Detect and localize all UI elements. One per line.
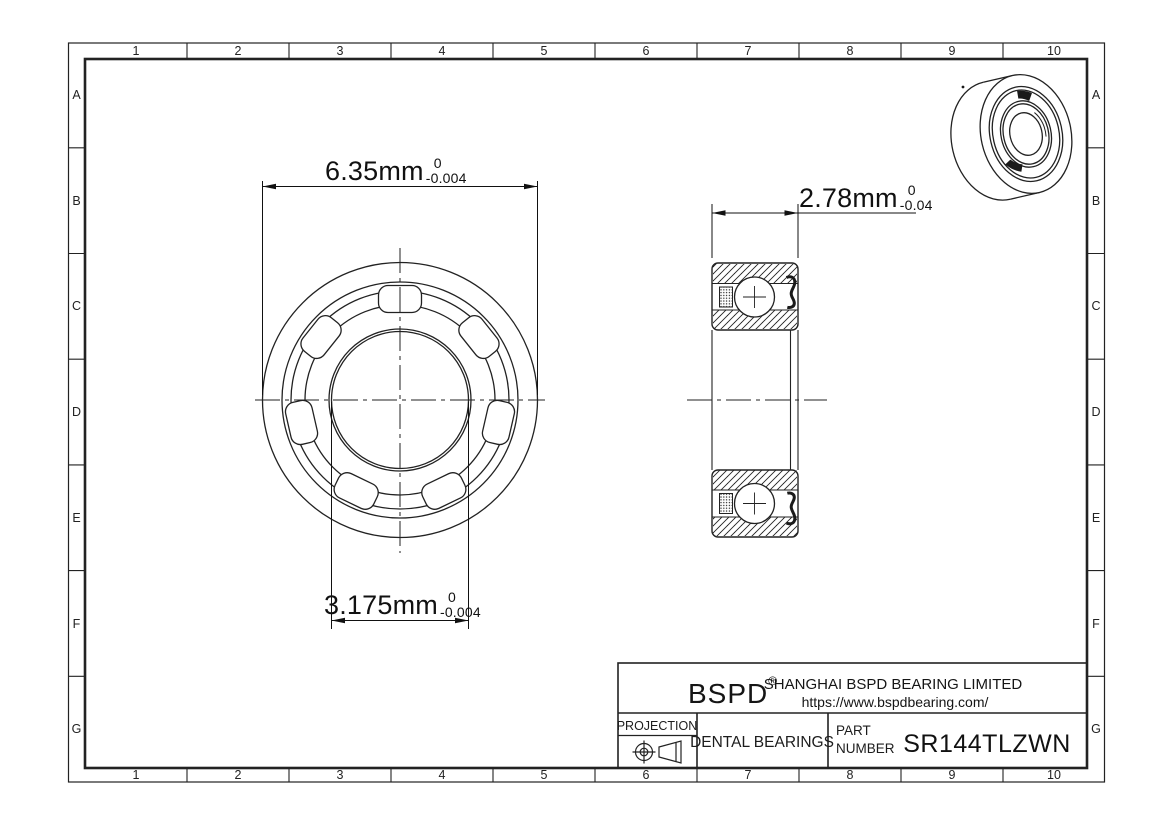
od-dimension-value: 6.35mm [325,159,424,185]
bore-dimension-tolerance: 0 -0.004 [440,590,481,619]
grid-col-label: 9 [949,768,956,782]
grid-row-label: A [72,88,80,102]
width-dimension-value: 2.78mm [799,186,898,212]
grid-row-label: E [72,511,80,525]
projection-label: PROJECTION [617,719,698,733]
width-dimension-text: 2.78mm 0 -0.04 [799,182,933,211]
grid-col-label: 3 [337,768,344,782]
grid-col-label: 5 [541,768,548,782]
company-name: SHANGHAI BSPD BEARING LIMITED [764,676,1022,693]
grid-row-label: B [1092,194,1100,208]
first-angle-projection-icon [633,741,682,764]
width-dimension-tolerance: 0 -0.04 [900,183,933,212]
grid-row-label: D [72,405,81,419]
grid-col-label: 9 [949,44,956,58]
front-view [255,181,545,629]
front-view-centerlines [255,248,545,553]
drawing-sheet: 1 2 3 4 5 6 7 8 9 10 1 2 3 4 5 6 7 8 9 1… [0,0,1170,827]
seal-section-bottom [720,494,733,514]
seal-section-top [720,287,733,307]
product-category: DENTAL BEARINGS [690,734,834,752]
grid-row-label: F [1092,617,1100,631]
grid-row-label: D [1091,405,1100,419]
grid-row-label: F [73,617,81,631]
od-dimension-tolerance: 0 -0.004 [426,156,467,185]
grid-col-label: 4 [439,768,446,782]
grid-col-label: 7 [745,44,752,58]
grid-row-label: G [1091,722,1101,736]
part-number-label: PART NUMBER [836,722,895,757]
grid-row-label: C [72,299,81,313]
section-view [687,204,916,537]
grid-row-label: A [1092,88,1100,102]
bore-dimension-text: 3.175mm 0 -0.004 [324,589,481,618]
part-number-value: SR144TLZWN [903,730,1071,759]
grid-col-label: 1 [133,44,140,58]
grid-row-label: G [72,722,82,736]
iso-view [939,64,1083,210]
drawing-canvas [0,0,1170,827]
grid-col-label: 6 [643,44,650,58]
grid-col-label: 7 [745,768,752,782]
grid-row-label: E [1092,511,1100,525]
grid-col-label: 8 [847,768,854,782]
grid-row-label: B [72,194,80,208]
section-bottom-half [712,470,798,537]
section-top-half [712,263,798,330]
grid-col-label: 10 [1047,768,1061,782]
grid-col-label: 1 [133,768,140,782]
grid-col-label: 5 [541,44,548,58]
od-dimension-text: 6.35mm 0 -0.004 [325,155,467,184]
company-website: https://www.bspdbearing.com/ [802,694,989,710]
grid-col-label: 2 [235,44,242,58]
grid-col-label: 8 [847,44,854,58]
grid-col-label: 2 [235,768,242,782]
grid-col-label: 10 [1047,44,1061,58]
sheet-frame [69,43,1105,782]
grid-col-label: 4 [439,44,446,58]
bore-dimension-value: 3.175mm [324,593,438,619]
grid-col-label: 3 [337,44,344,58]
grid-row-label: C [1091,299,1100,313]
grid-col-label: 6 [643,768,650,782]
